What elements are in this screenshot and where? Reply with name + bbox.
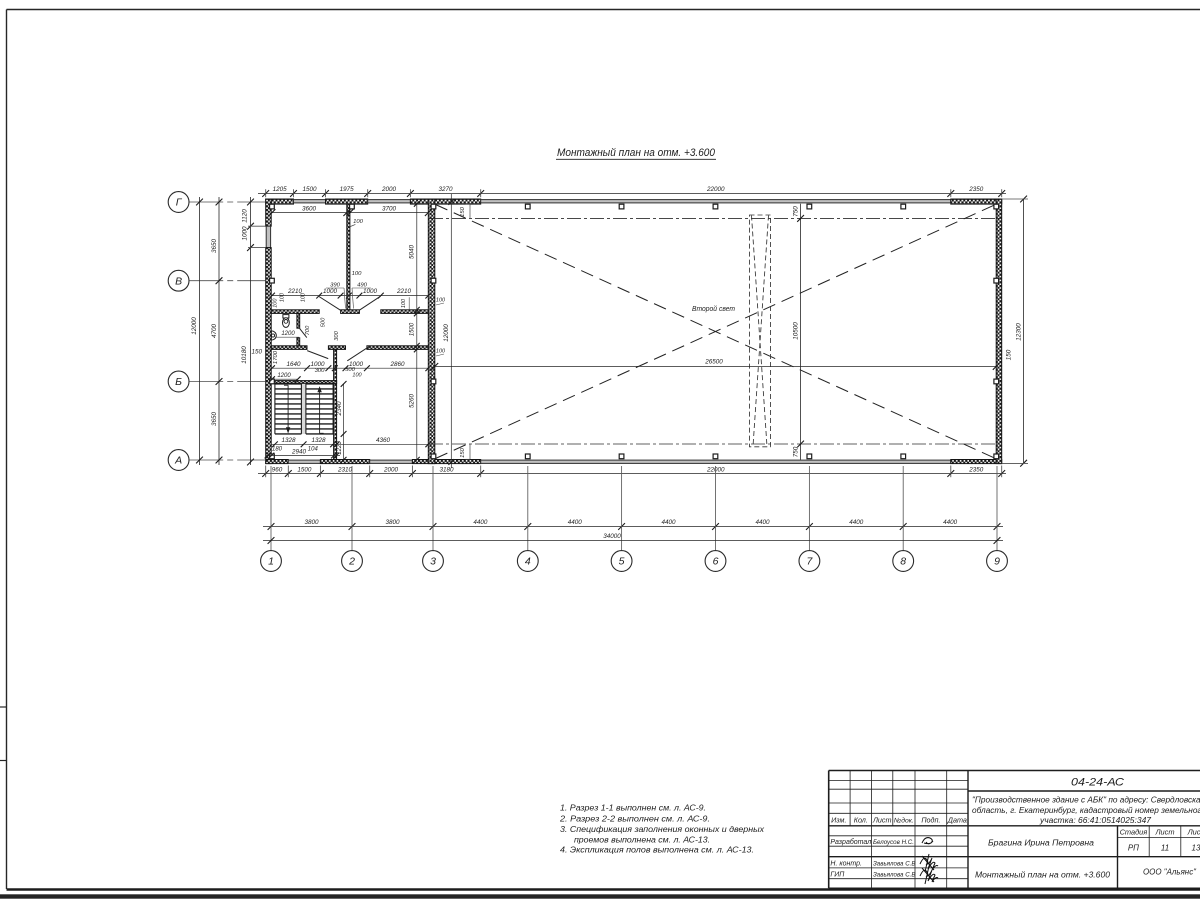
svg-text:2. Разрез 2-2 выполнен см. л.: 2. Разрез 2-2 выполнен см. л. АС-9.	[559, 814, 710, 823]
svg-text:150: 150	[1005, 349, 1012, 360]
svg-text:Лис: Лис	[1187, 828, 1200, 837]
svg-text:РП: РП	[1128, 844, 1139, 853]
svg-text:4400: 4400	[473, 519, 488, 526]
svg-text:100: 100	[436, 298, 446, 304]
svg-text:5260: 5260	[408, 394, 415, 409]
svg-text:100: 100	[301, 292, 307, 302]
svg-text:Б: Б	[175, 376, 182, 388]
svg-text:104: 104	[308, 447, 319, 453]
svg-text:Н. контр.: Н. контр.	[830, 861, 862, 868]
svg-text:область, г. Екатеринбург, када: область, г. Екатеринбург, кадастровый но…	[972, 806, 1200, 815]
svg-text:Белоусов Н.С.: Белоусов Н.С.	[873, 839, 914, 846]
svg-text:Кол.: Кол.	[854, 816, 868, 825]
svg-text:Дата: Дата	[947, 816, 967, 825]
svg-text:4400: 4400	[568, 519, 583, 526]
svg-text:4400: 4400	[661, 519, 676, 526]
svg-text:100: 100	[353, 219, 364, 225]
svg-text:10500: 10500	[792, 322, 799, 340]
svg-text:1500: 1500	[302, 186, 317, 193]
svg-text:100: 100	[352, 271, 363, 277]
svg-text:5: 5	[619, 556, 625, 568]
svg-text:4400: 4400	[755, 519, 770, 526]
svg-text:участка: 66:41:0514025:347: участка: 66:41:0514025:347	[1039, 816, 1152, 825]
svg-text:500: 500	[321, 317, 327, 327]
svg-text:3800: 3800	[304, 519, 319, 526]
svg-text:9: 9	[994, 556, 1000, 568]
svg-text:Второй свет: Второй свет	[692, 304, 735, 313]
svg-text:12000: 12000	[191, 317, 198, 335]
svg-text:100: 100	[352, 373, 362, 379]
svg-text:22000: 22000	[706, 186, 725, 193]
svg-text:34000: 34000	[603, 533, 621, 540]
svg-text:2340: 2340	[336, 401, 343, 417]
svg-text:3180: 3180	[439, 467, 454, 474]
svg-text:4. Экспликация полов выполнен: 4. Экспликация полов выполнена см. л. АС…	[560, 845, 754, 854]
svg-text:1975: 1975	[340, 186, 355, 193]
svg-text:№док.: №док.	[894, 817, 914, 825]
svg-text:проемов выполнена см. л. АС-13: проемов выполнена см. л. АС-13.	[574, 836, 710, 845]
svg-text:2860: 2860	[389, 361, 405, 368]
svg-text:150: 150	[460, 206, 466, 217]
svg-text:11: 11	[1161, 844, 1169, 853]
svg-text:12300: 12300	[1016, 323, 1023, 341]
svg-text:300: 300	[334, 330, 340, 340]
svg-text:4400: 4400	[849, 519, 864, 526]
svg-text:13: 13	[1192, 844, 1200, 853]
svg-text:100: 100	[401, 298, 407, 308]
svg-text:700: 700	[305, 325, 311, 335]
svg-text:3800: 3800	[385, 519, 400, 526]
svg-text:Подп.: Подп.	[921, 816, 940, 825]
svg-text:Завьялова С.В: Завьялова С.В	[873, 861, 916, 868]
svg-text:1120: 1120	[242, 209, 249, 223]
svg-text:750: 750	[792, 446, 799, 457]
svg-text:2210: 2210	[396, 288, 412, 295]
svg-text:2000: 2000	[383, 467, 399, 474]
svg-text:300: 300	[315, 368, 326, 374]
svg-text:1000: 1000	[310, 361, 325, 368]
svg-text:ООО "Альянс": ООО "Альянс"	[1143, 868, 1197, 877]
svg-text:Изм.: Изм.	[831, 816, 846, 825]
svg-text:1205: 1205	[273, 186, 288, 193]
svg-text:4400: 4400	[943, 519, 958, 526]
svg-text:960: 960	[272, 467, 283, 474]
svg-text:100: 100	[436, 349, 446, 355]
svg-text:3. Спецификация заполнения ок: 3. Спецификация заполнения оконных и две…	[560, 825, 765, 834]
svg-text:5040: 5040	[408, 245, 415, 260]
svg-text:1000: 1000	[242, 226, 249, 241]
svg-text:4360: 4360	[376, 437, 391, 444]
svg-text:Разработал: Разработал	[830, 838, 871, 846]
svg-text:1640: 1640	[286, 361, 301, 368]
svg-text:26500: 26500	[704, 358, 723, 365]
svg-text:3600: 3600	[302, 205, 317, 212]
svg-text:3700: 3700	[382, 205, 397, 212]
svg-text:"Производственное здание с АБК: "Производственное здание с АБК" по адрес…	[972, 796, 1200, 805]
svg-text:2350: 2350	[968, 186, 984, 193]
svg-text:1200: 1200	[277, 373, 291, 379]
svg-text:180: 180	[272, 447, 283, 453]
svg-text:1000: 1000	[363, 288, 378, 295]
svg-text:8: 8	[900, 556, 906, 568]
svg-text:2: 2	[348, 556, 355, 568]
svg-text:4700: 4700	[211, 324, 218, 339]
svg-text:1328: 1328	[281, 437, 296, 444]
svg-text:Брагина Ирина Петровна: Брагина Ирина Петровна	[988, 837, 1094, 847]
svg-text:150: 150	[460, 447, 466, 458]
svg-text:3650: 3650	[211, 412, 218, 427]
svg-text:2000: 2000	[381, 186, 397, 193]
svg-text:3650: 3650	[211, 239, 218, 254]
svg-text:04-24-АС: 04-24-АС	[1071, 777, 1124, 789]
svg-text:Завьялова С.В: Завьялова С.В	[873, 871, 916, 878]
svg-text:В: В	[175, 275, 182, 287]
svg-text:2350: 2350	[968, 467, 984, 474]
svg-text:2310: 2310	[337, 467, 353, 474]
svg-text:150: 150	[251, 348, 262, 355]
svg-text:100: 100	[280, 292, 286, 302]
svg-text:750: 750	[792, 206, 799, 217]
svg-text:1500: 1500	[297, 467, 312, 474]
svg-text:А: А	[174, 455, 182, 467]
svg-text:1200: 1200	[281, 331, 295, 337]
svg-text:Стадия: Стадия	[1120, 828, 1148, 837]
svg-text:1328: 1328	[311, 437, 326, 444]
svg-text:ГИП: ГИП	[830, 871, 845, 878]
svg-text:4: 4	[525, 556, 531, 568]
svg-text:Монтажный план на отм. +3.600: Монтажный план на отм. +3.600	[557, 147, 716, 159]
svg-text:1: 1	[268, 556, 274, 568]
svg-text:100: 100	[273, 298, 279, 308]
svg-text:12000: 12000	[443, 324, 450, 342]
svg-text:3: 3	[430, 556, 436, 568]
svg-text:3270: 3270	[438, 186, 453, 193]
svg-text:1700: 1700	[273, 350, 279, 364]
svg-text:Монтажный план на отм. +3.600: Монтажный план на отм. +3.600	[975, 870, 1110, 880]
svg-text:Лист: Лист	[1154, 828, 1174, 837]
svg-text:10180: 10180	[241, 346, 248, 364]
svg-text:2940: 2940	[291, 448, 307, 455]
svg-text:1500: 1500	[409, 322, 415, 336]
svg-text:6: 6	[713, 556, 719, 568]
svg-text:1000: 1000	[323, 288, 338, 295]
svg-text:Лист: Лист	[872, 816, 892, 825]
svg-text:1. Разрез 1-1 выполнен см. л.: 1. Разрез 1-1 выполнен см. л. АС-9.	[560, 804, 706, 813]
